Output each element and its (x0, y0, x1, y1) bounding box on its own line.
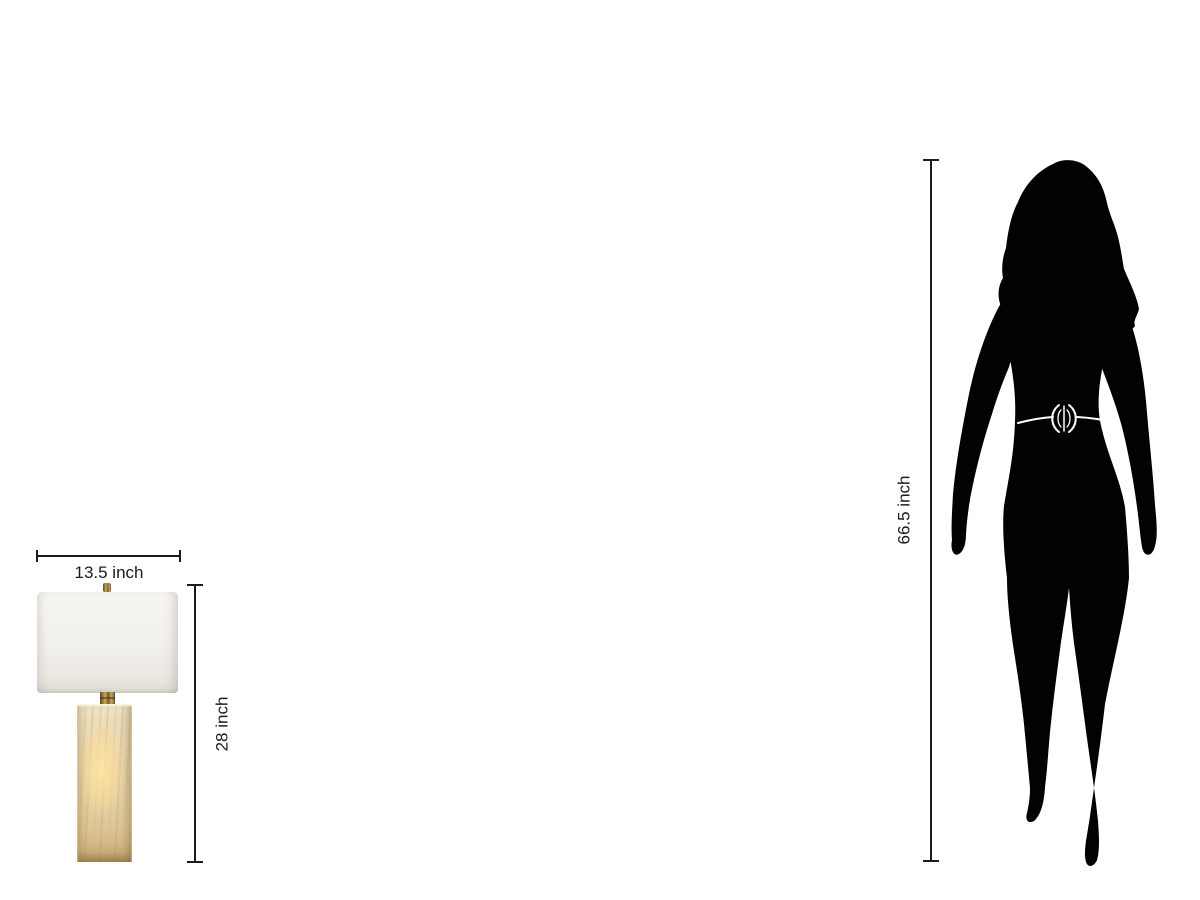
lamp-height-label: 28 inch (214, 697, 231, 752)
person-height-label: 66.5 inch (896, 476, 913, 545)
woman-silhouette (940, 155, 1165, 870)
lamp-height-bottom-tick (187, 861, 203, 863)
lamp-base (77, 704, 132, 862)
lamp-neck-ring (100, 697, 115, 699)
lamp-height-dimension-line (194, 585, 196, 863)
person-height-bottom-tick (923, 860, 939, 862)
lamp-finial (103, 583, 111, 592)
lamp-shade (37, 592, 178, 693)
lamp-width-dimension-line (37, 555, 180, 557)
lamp-width-label: 13.5 inch (37, 564, 181, 581)
person-height-dimension-line (930, 160, 932, 862)
woman-body (996, 160, 1139, 866)
lamp-width-right-tick (179, 550, 181, 562)
size-comparison-figure: 13.5 inch 28 inch 66.5 inch (0, 0, 1200, 900)
